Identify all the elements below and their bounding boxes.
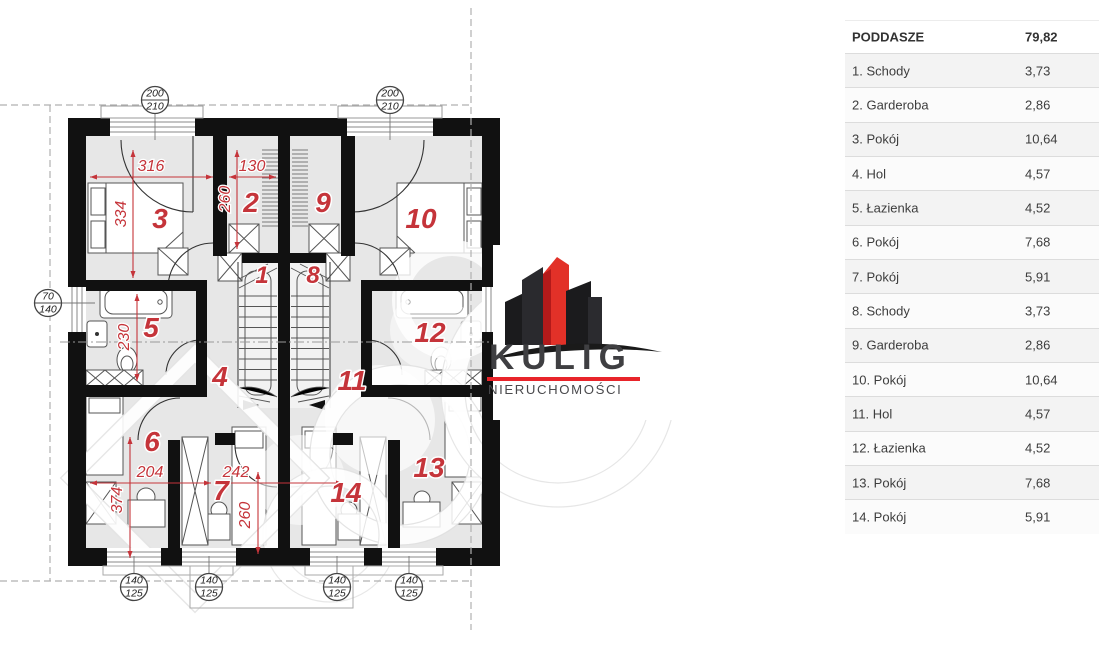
table-row: 9. Garderoba2,86 xyxy=(845,328,1099,362)
svg-text:140: 140 xyxy=(125,575,143,587)
buildings-icon xyxy=(505,257,602,345)
svg-text:140: 140 xyxy=(400,575,418,587)
table-row: 1. Schody3,73 xyxy=(845,53,1099,87)
room-number-13: 13 xyxy=(413,452,445,483)
room-number-4: 4 xyxy=(211,361,228,392)
table-row: 11. Hol4,57 xyxy=(845,396,1099,430)
svg-text:200: 200 xyxy=(145,88,164,100)
window-left xyxy=(68,287,86,332)
room-number-8: 8 xyxy=(306,262,320,289)
dimension-label: 204 xyxy=(136,464,164,481)
room-number-10: 10 xyxy=(405,203,437,234)
room-number-3: 3 xyxy=(152,203,168,234)
room-number-5: 5 xyxy=(143,312,159,343)
logo-red-underline xyxy=(487,377,640,381)
room-number-11: 11 xyxy=(337,365,366,396)
dimension-label: 260 xyxy=(237,502,254,530)
room-number-14: 14 xyxy=(330,477,362,508)
table-row: 12. Łazienka4,52 xyxy=(845,431,1099,465)
desk-chair-room7 xyxy=(208,502,230,540)
room-number-7: 7 xyxy=(213,475,230,506)
svg-text:210: 210 xyxy=(380,101,399,113)
table-row: 6. Pokój7,68 xyxy=(845,225,1099,259)
table-header-value: 79,82 xyxy=(1025,30,1058,45)
table-row: 4. Hol4,57 xyxy=(845,156,1099,190)
svg-text:140: 140 xyxy=(200,575,218,587)
table-header-row: PODDASZE 79,82 xyxy=(845,20,1099,53)
dimension-label: 316 xyxy=(138,158,165,175)
dimension-label: 230 xyxy=(116,324,133,352)
room-number-9: 9 xyxy=(315,187,331,218)
dimension-label: 374 xyxy=(109,487,126,514)
svg-text:125: 125 xyxy=(200,588,218,600)
room-number-1: 1 xyxy=(255,262,268,289)
table-header-label: PODDASZE xyxy=(852,30,924,45)
svg-text:125: 125 xyxy=(125,588,143,600)
page: 316 334 130 260 230 204 242 374 260 1 2 … xyxy=(0,0,1099,649)
room-number-2: 2 xyxy=(242,187,259,218)
dimension-label: 334 xyxy=(113,201,130,228)
dimension-label: 130 xyxy=(239,158,266,175)
svg-text:125: 125 xyxy=(400,588,418,600)
svg-text:140: 140 xyxy=(39,304,57,316)
svg-text:125: 125 xyxy=(328,588,346,600)
table-row: 2. Garderoba2,86 xyxy=(845,87,1099,121)
svg-text:200: 200 xyxy=(380,88,399,100)
logo-brand-text: KULIG xyxy=(489,338,633,378)
bed-room3 xyxy=(88,183,183,253)
table-row: 13. Pokój7,68 xyxy=(845,465,1099,499)
room-number-12: 12 xyxy=(414,317,446,348)
table-row: 3. Pokój10,64 xyxy=(845,122,1099,156)
svg-text:210: 210 xyxy=(145,101,164,113)
svg-text:70: 70 xyxy=(42,291,54,303)
area-table: PODDASZE 79,82 1. Schody3,73 2. Garderob… xyxy=(845,20,1099,534)
table-row: 7. Pokój5,91 xyxy=(845,259,1099,293)
logo-subtitle-text: NIERUCHOMOŚCI xyxy=(488,382,622,397)
table-row: 10. Pokój10,64 xyxy=(845,362,1099,396)
dimension-label: 260 xyxy=(217,186,234,214)
svg-text:140: 140 xyxy=(328,575,346,587)
table-row: 5. Łazienka4,52 xyxy=(845,190,1099,224)
room-number-6: 6 xyxy=(144,426,160,457)
table-row: 8. Schody3,73 xyxy=(845,293,1099,327)
table-row: 14. Pokój5,91 xyxy=(845,499,1099,533)
kulig-logo: KULIG NIERUCHOMOŚCI xyxy=(493,245,693,420)
